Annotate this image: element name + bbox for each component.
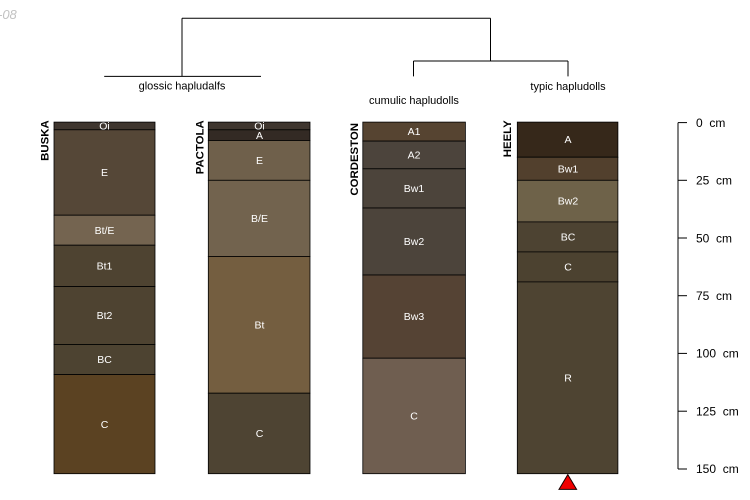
svg-text:R: R [564,372,572,384]
svg-text:50 cm: 50 cm [696,231,732,245]
svg-text:Bw1: Bw1 [404,183,425,195]
svg-text:A1: A1 [408,126,421,138]
svg-text:Bw1: Bw1 [558,163,579,175]
svg-text:C: C [256,428,264,440]
svg-text:-08: -08 [0,7,18,22]
svg-text:100 cm: 100 cm [696,347,739,361]
svg-text:Bt2: Bt2 [97,310,113,322]
svg-text:A: A [564,134,571,146]
svg-text:E: E [101,167,108,179]
svg-text:BC: BC [561,232,576,244]
svg-text:25 cm: 25 cm [696,174,732,188]
svg-text:150 cm: 150 cm [696,462,739,476]
svg-text:E: E [256,155,263,167]
svg-text:BC: BC [97,354,112,366]
svg-text:A: A [256,130,263,142]
svg-text:C: C [101,419,109,431]
svg-text:Bt1: Bt1 [97,261,113,273]
svg-text:typic hapludolls: typic hapludolls [530,81,606,93]
svg-text:Bw3: Bw3 [404,311,425,323]
svg-text:glossic hapludalfs: glossic hapludalfs [139,81,226,93]
svg-text:Bt/E: Bt/E [95,225,115,237]
svg-text:PACTOLA: PACTOLA [195,120,207,174]
svg-text:cumulic hapludolls: cumulic hapludolls [369,95,459,107]
svg-text:Bw2: Bw2 [558,196,579,208]
svg-text:Bw2: Bw2 [404,236,425,248]
svg-text:Bt: Bt [255,320,265,332]
svg-text:C: C [564,262,572,274]
svg-text:A2: A2 [408,150,421,162]
svg-text:BUSKA: BUSKA [40,120,52,161]
svg-text:CORDESTON: CORDESTON [349,123,361,196]
svg-text:125 cm: 125 cm [696,405,739,419]
svg-text:B/E: B/E [251,213,268,225]
svg-text:HEELY: HEELY [502,120,514,157]
svg-text:Oi: Oi [99,121,110,133]
svg-text:C: C [410,411,418,423]
svg-text:0 cm: 0 cm [696,116,725,130]
svg-text:75 cm: 75 cm [696,289,732,303]
